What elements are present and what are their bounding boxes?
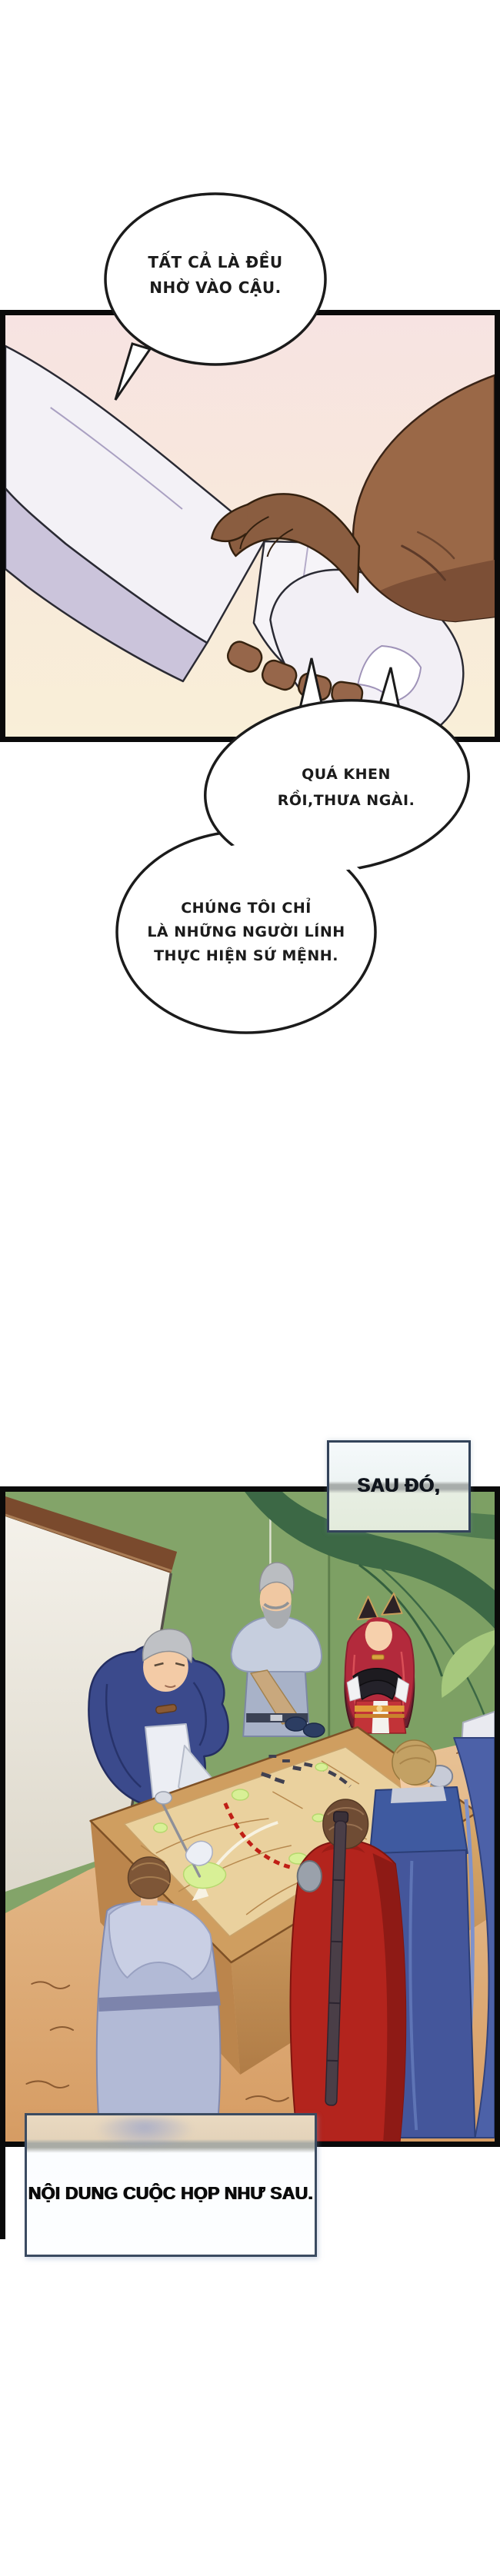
bubble-2-line-2: RỒI,THƯA NGÀI. bbox=[254, 787, 438, 814]
webtoon-page: TẤT CẢ LÀ ĐỀU NHỜ VÀO CẬU. QUÁ KHEN RỒI,… bbox=[0, 0, 500, 2576]
bubble-1-tail bbox=[115, 344, 150, 400]
bubble-3-line-1: CHÚNG TÔI CHỈ bbox=[129, 897, 363, 920]
bubble-3-line-3: THỰC HIỆN SỨ MỆNH. bbox=[129, 944, 363, 968]
war-room-illustration bbox=[5, 1492, 495, 2142]
bubble-1-line-2: NHỜ VÀO CẬU. bbox=[122, 275, 309, 301]
bubble-2-line-1: QUÁ KHEN bbox=[254, 761, 438, 787]
panel-border-stub bbox=[0, 2147, 5, 2239]
caption-box-sau-do: SAU ĐÓ, bbox=[327, 1440, 471, 1533]
caption-sau-do-text: SAU ĐÓ, bbox=[329, 1475, 468, 1497]
panel-war-room bbox=[0, 1486, 500, 2147]
speech-bubble-group bbox=[77, 646, 500, 1046]
bubble-1-line-1: TẤT CẢ LÀ ĐỀU bbox=[122, 250, 309, 275]
bubble-3-text: CHÚNG TÔI CHỈ LÀ NHỮNG NGƯỜI LÍNH THỰC H… bbox=[129, 897, 363, 968]
bubble-3-line-2: LÀ NHỮNG NGƯỜI LÍNH bbox=[129, 920, 363, 944]
bubble-1-text: TẤT CẢ LÀ ĐỀU NHỜ VÀO CẬU. bbox=[122, 250, 309, 301]
blurred-figure-silhouette bbox=[95, 2118, 195, 2150]
caption-meeting-text: NỘI DUNG CUỘC HỌP NHƯ SAU. bbox=[27, 2183, 315, 2204]
caption-box-meeting: NỘI DUNG CUỘC HỌP NHƯ SAU. bbox=[25, 2113, 317, 2257]
bubble-2-text: QUÁ KHEN RỒI,THƯA NGÀI. bbox=[254, 761, 438, 814]
